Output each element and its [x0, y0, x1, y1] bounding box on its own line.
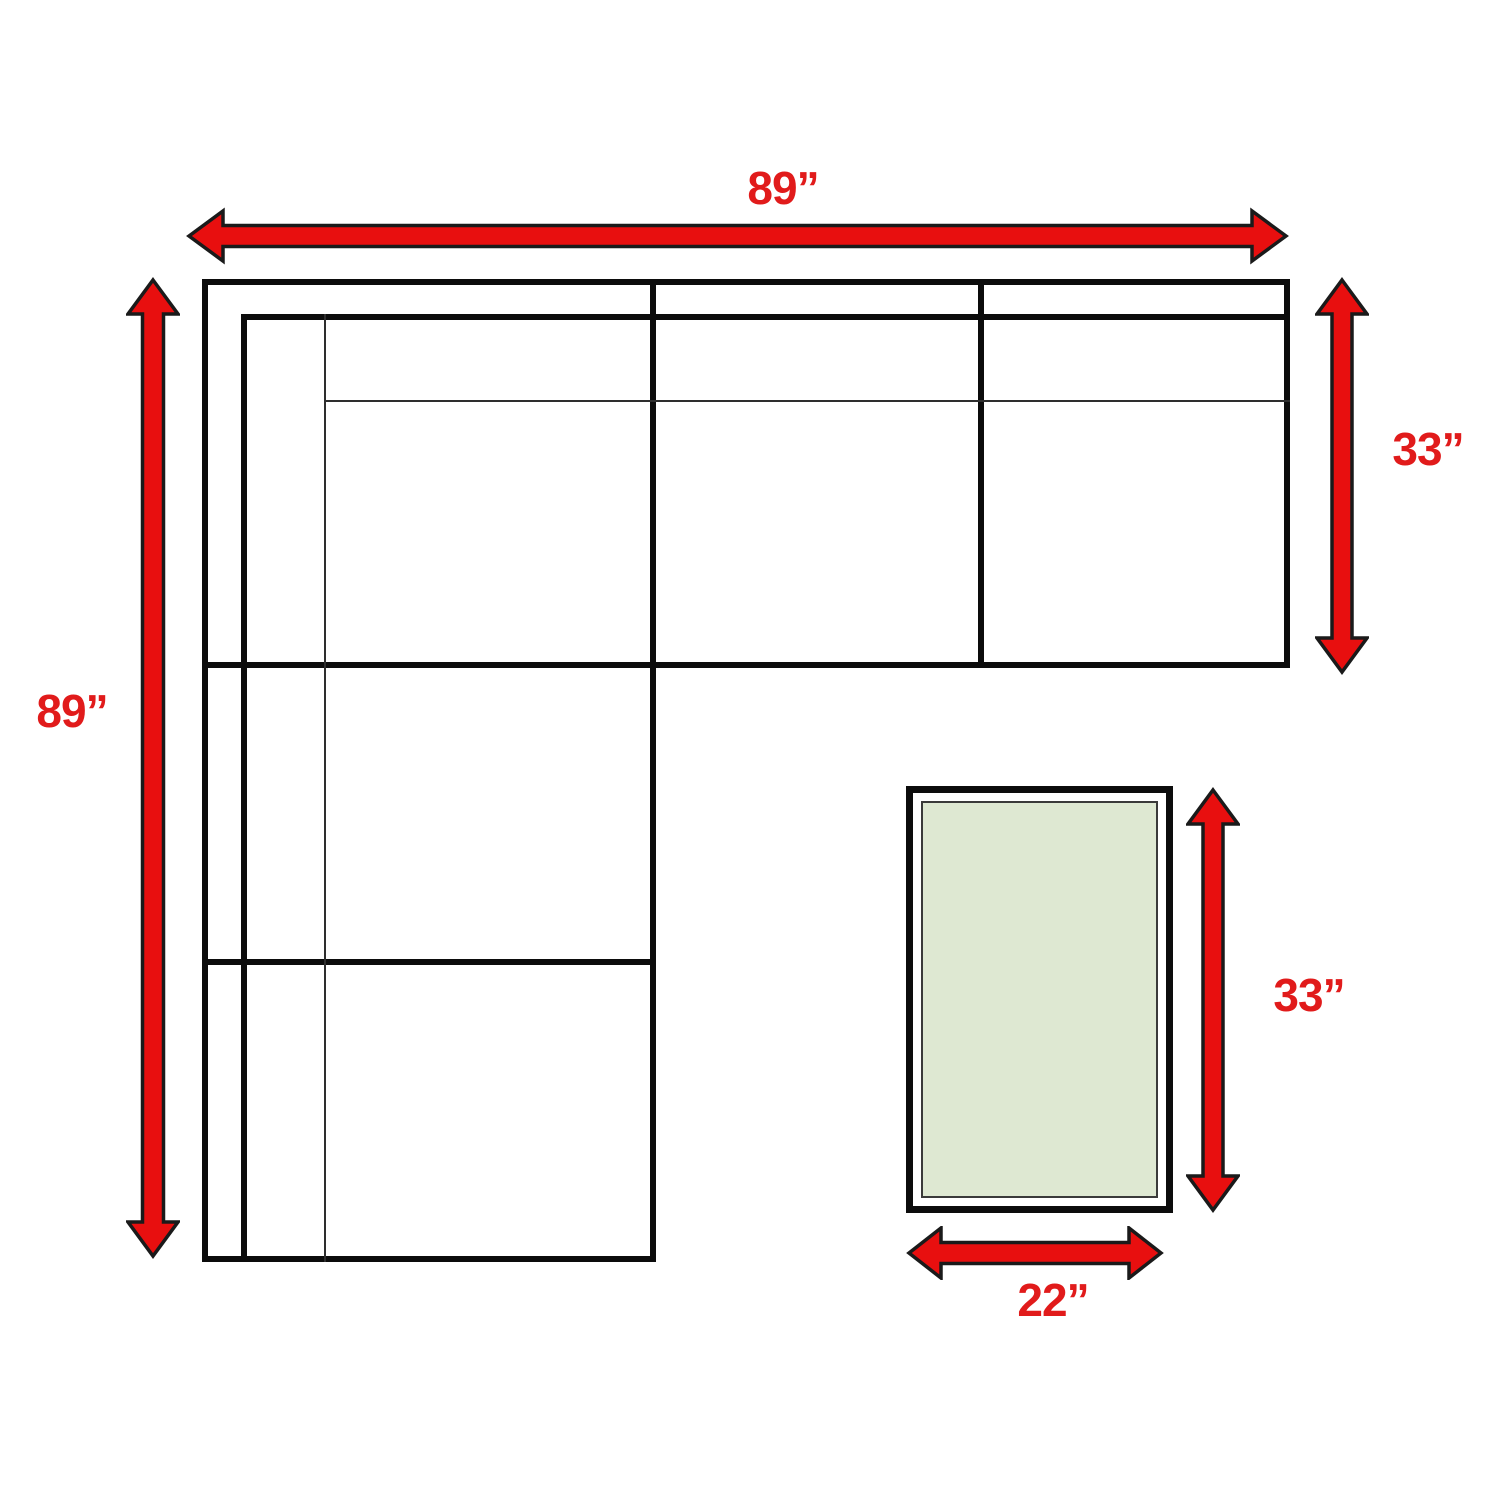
ottoman-length-label: 33”	[1249, 967, 1369, 1023]
sofa-depth-label: 33”	[1368, 421, 1488, 477]
sofa-top-section-divider	[978, 279, 984, 668]
sofa-backrest-inner-line-horizontal	[241, 314, 1290, 320]
sofa-left-section-divider	[202, 959, 656, 965]
ottoman-width-label: 22”	[993, 1272, 1113, 1328]
sofa-backrest-inner-line-vertical	[241, 314, 247, 1262]
sofa-height-arrow-icon	[126, 276, 180, 1260]
ottoman-cushion	[921, 801, 1158, 1198]
sofa-depth-arrow-icon	[1315, 276, 1369, 676]
sofa-bottom-edge	[202, 1256, 656, 1262]
sofa-cushion-line-vertical	[324, 314, 326, 1262]
sofa-right-edge	[1284, 279, 1290, 668]
sofa-top-edge	[202, 279, 1290, 285]
ottoman-length-arrow-icon	[1186, 786, 1240, 1214]
sofa-cushion-line-horizontal	[324, 400, 1290, 402]
sofa-width-label: 89”	[723, 160, 843, 216]
sofa-front-edge	[202, 662, 1290, 668]
sofa-left-edge	[202, 279, 208, 1262]
sofa-corner-divider	[650, 279, 656, 1262]
sofa-height-label: 89”	[12, 683, 132, 739]
sofa-dimension-diagram: 89” 89” 33” 33” 22”	[0, 0, 1500, 1500]
